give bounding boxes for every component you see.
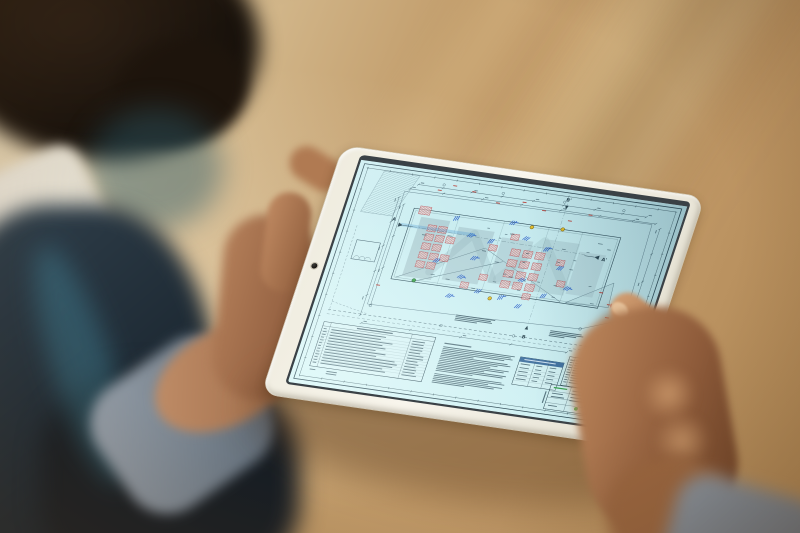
- photo-scene: A A' B' B: [0, 0, 800, 533]
- photo-vignette: [0, 0, 800, 533]
